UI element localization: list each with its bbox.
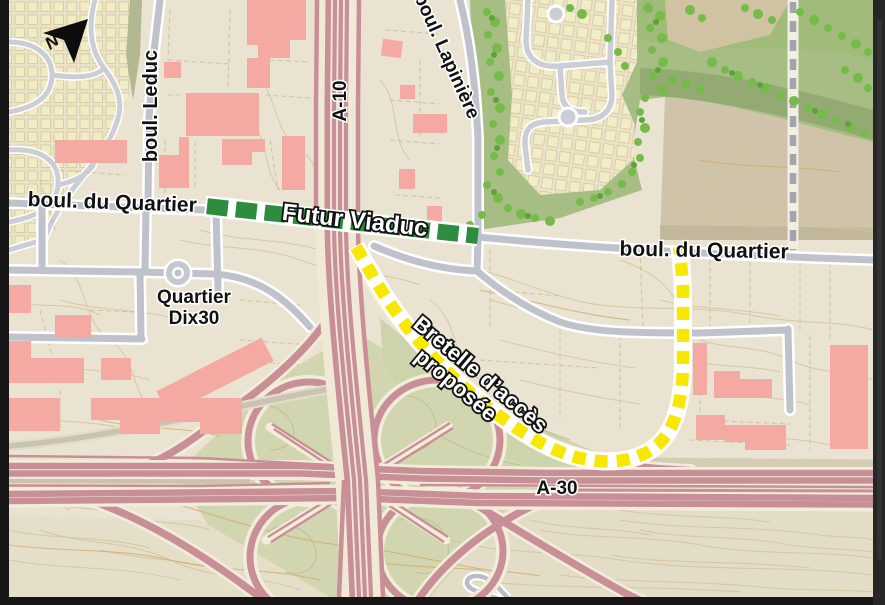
svg-text:Quartier: Quartier <box>157 287 232 308</box>
svg-text:Dix30: Dix30 <box>169 308 220 329</box>
svg-text:boul. du Quartier: boul. du Quartier <box>619 238 789 264</box>
svg-text:boul. Leduc: boul. Leduc <box>140 50 162 162</box>
svg-text:A-10: A-10 <box>330 80 351 121</box>
svg-text:A-30: A-30 <box>536 478 577 499</box>
